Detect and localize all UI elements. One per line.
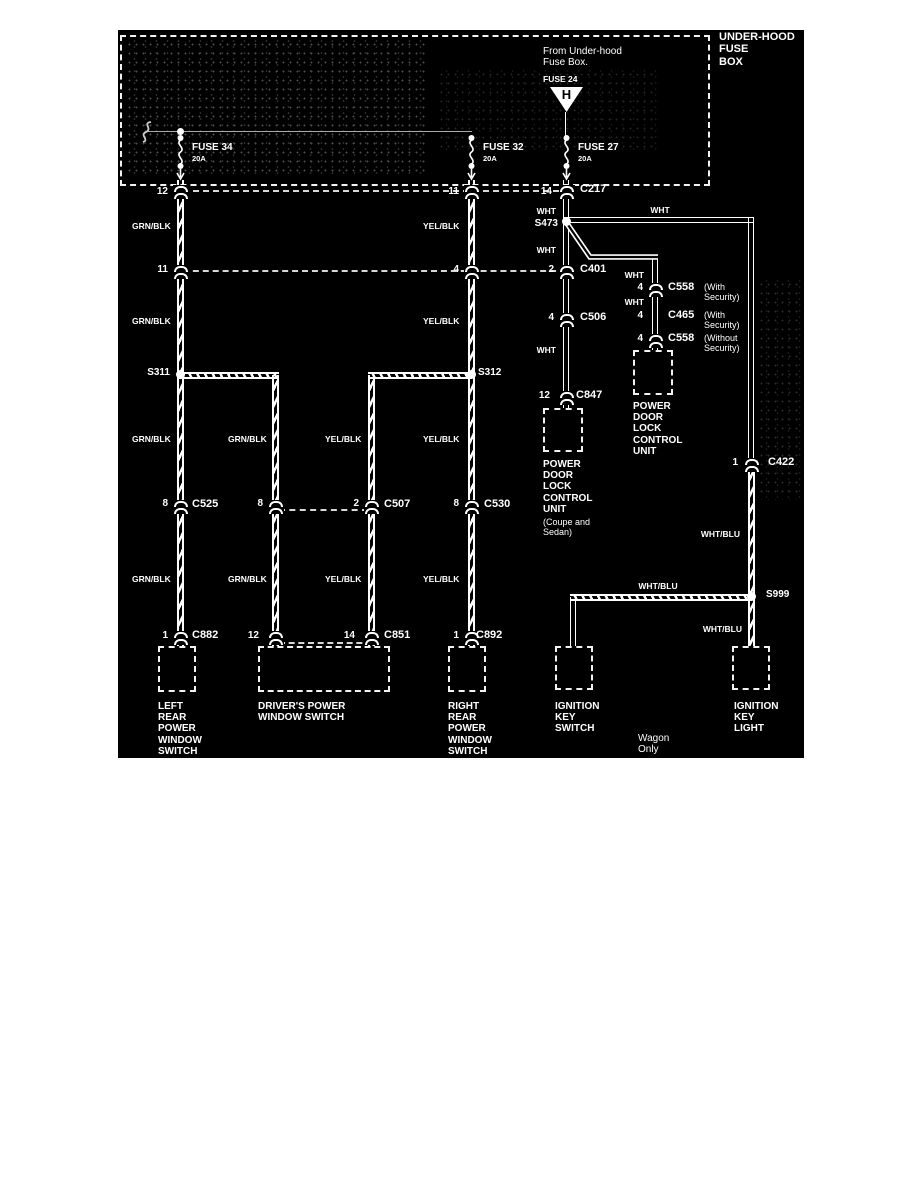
pin-1: 1: [714, 457, 738, 468]
splice-s311-label: S311: [126, 367, 170, 378]
wire-color-label: GRN/BLK: [132, 575, 171, 585]
pdl-unit-security-box: [633, 350, 673, 395]
ignition-key-light-box: [732, 646, 770, 690]
pin-4: 4: [619, 310, 643, 321]
fuse-bus-wire: [148, 131, 472, 132]
fuse-34-label: FUSE 34: [192, 142, 233, 153]
wagon-only-note: Wagon Only: [638, 733, 669, 755]
wire-color-label: WHT: [524, 207, 556, 217]
c558a-note: (With Security): [704, 282, 740, 302]
right-rear-switch-label: RIGHT REAR POWER WINDOW SWITCH: [448, 701, 492, 757]
wire-yelblk-right: [468, 180, 475, 648]
wire-color-label: GRN/BLK: [228, 575, 267, 585]
pin-8: 8: [144, 498, 168, 509]
pin-1: 1: [144, 630, 168, 641]
left-rear-switch-box: [158, 646, 196, 692]
wire-color-label: GRN/BLK: [228, 435, 267, 445]
connector-symbol: [648, 283, 664, 297]
left-rear-switch-label: LEFT REAR POWER WINDOW SWITCH: [158, 701, 202, 757]
wire-color-label: WHT: [612, 271, 644, 281]
wire-whtblu-ignswitch: [570, 597, 576, 648]
svg-text:H: H: [562, 87, 571, 102]
wire-break-squiggle: [138, 120, 156, 144]
wire-whtblu-keylight-lower: [748, 465, 755, 648]
splice-s473-dot: [562, 217, 571, 226]
connector-symbol: [559, 313, 575, 327]
connector-c506-label: C506: [580, 311, 606, 323]
c465-note: (With Security): [704, 310, 740, 330]
splice-s999-dot: [747, 592, 756, 601]
wire-grnblk-left: [177, 180, 184, 648]
wire-color-label: GRN/BLK: [132, 435, 171, 445]
wire-color-label: WHT: [524, 246, 556, 256]
c558b-note: (Without Security): [704, 333, 740, 353]
right-rear-switch-box: [448, 646, 486, 692]
connector-symbol: [648, 334, 664, 348]
fuse-32-label: FUSE 32: [483, 142, 524, 153]
connector-c558a-label: C558: [668, 281, 694, 293]
wire-color-label: YEL/BLK: [423, 317, 459, 327]
pdl-unit-coupe-label: POWER DOOR LOCK CONTROL UNIT: [543, 459, 592, 515]
connector-symbol: [173, 631, 189, 645]
document-page: UNDER-HOOD FUSE BOX From Under-hood Fuse…: [0, 0, 918, 1188]
supply-triangle-icon: H: [549, 86, 584, 113]
connector-c530-label: C530: [484, 498, 510, 510]
wire-wht-keylight-upper: [748, 217, 754, 465]
ignition-key-switch-box: [555, 646, 593, 690]
connector-c401-label: C401: [580, 263, 606, 275]
wire-color-label: WHT: [612, 298, 644, 308]
connector-c465-label: C465: [668, 309, 694, 321]
wire-color-label: WHT/BLU: [680, 625, 742, 635]
splice-s473-label: S473: [516, 218, 558, 229]
fuse-box-title: UNDER-HOOD FUSE BOX: [719, 31, 795, 68]
pin-2: 2: [530, 264, 554, 275]
fuse-27-label: FUSE 27: [578, 142, 619, 153]
fuse-27-rating: 20A: [578, 155, 592, 163]
wire-color-label: WHT: [630, 206, 690, 216]
pin-4: 4: [619, 333, 643, 344]
pin-4: 4: [619, 282, 643, 293]
wiring-diagram: UNDER-HOOD FUSE BOX From Under-hood Fuse…: [118, 30, 804, 758]
pin-12: 12: [235, 630, 259, 641]
wire-color-label: GRN/BLK: [132, 222, 171, 232]
connector-symbol: [744, 458, 760, 472]
connector-symbol: [364, 631, 380, 645]
drivers-switch-box: [258, 646, 390, 692]
wire-color-label: YEL/BLK: [423, 575, 459, 585]
fuse-34-icon: [172, 133, 189, 181]
pdl-unit-coupe-box: [543, 408, 583, 452]
connector-c525-label: C525: [192, 498, 218, 510]
wire-color-label: YEL/BLK: [423, 435, 459, 445]
pin-12: 12: [526, 390, 550, 401]
connector-c422-label: C422: [768, 456, 794, 468]
connector-symbol: [364, 500, 380, 514]
splice-s312-label: S312: [478, 367, 501, 378]
connector-symbol: [464, 185, 480, 199]
splice-s311-dot: [176, 370, 185, 379]
pin-11: 11: [144, 264, 168, 275]
wire-color-label: WHT/BLU: [678, 530, 740, 540]
wire-s473-diagonal: [558, 213, 660, 263]
connector-c851-label: C851: [384, 629, 410, 641]
pin-11: 11: [435, 186, 459, 197]
source-fuse-label: FUSE 24: [543, 75, 578, 85]
connector-symbol: [464, 500, 480, 514]
pin-2: 2: [335, 498, 359, 509]
wire-s999-horizontal: [570, 594, 752, 601]
wire-color-label: WHT: [524, 346, 556, 356]
wire-color-label: WHT/BLU: [613, 582, 703, 592]
fuse-34-rating: 20A: [192, 155, 206, 163]
connector-symbol: [268, 500, 284, 514]
c507-dashed-line: [279, 509, 368, 511]
pdl-unit-security-label: POWER DOOR LOCK CONTROL UNIT: [633, 401, 682, 457]
drivers-switch-label: DRIVER'S POWER WINDOW SWITCH: [258, 701, 345, 723]
connector-c558b-label: C558: [668, 332, 694, 344]
pin-12: 12: [144, 186, 168, 197]
fuse-32-rating: 20A: [483, 155, 497, 163]
connector-row-dashed-line-mid: [173, 270, 566, 272]
ignition-key-light-label: IGNITION KEY LIGHT: [734, 701, 778, 735]
connector-c507-label: C507: [384, 498, 410, 510]
connector-symbol: [173, 500, 189, 514]
pin-1: 1: [435, 630, 459, 641]
wire-color-label: GRN/BLK: [132, 317, 171, 327]
pin-4: 4: [435, 264, 459, 275]
connector-symbol: [559, 185, 575, 199]
connector-symbol: [464, 265, 480, 279]
wire-color-label: YEL/BLK: [423, 222, 459, 232]
wire-s312-branch: [368, 372, 472, 379]
pin-4: 4: [530, 312, 554, 323]
pdl-unit-coupe-note: (Coupe and Sedan): [543, 517, 590, 537]
splice-s312-dot: [467, 370, 476, 379]
connector-symbol: [559, 265, 575, 279]
c851-dashed-line: [279, 642, 372, 644]
connector-c217-label: C217: [580, 183, 606, 195]
wire-s311-branch: [177, 372, 279, 379]
connector-symbol: [559, 391, 575, 405]
pin-8: 8: [435, 498, 459, 509]
connector-symbol: [173, 265, 189, 279]
connector-symbol: [268, 631, 284, 645]
scan-noise: [126, 40, 426, 178]
pin-14: 14: [331, 630, 355, 641]
connector-c847-label: C847: [576, 389, 602, 401]
wire-color-label: YEL/BLK: [325, 575, 361, 585]
connector-symbol: [173, 185, 189, 199]
fuse-27-icon: [558, 133, 575, 181]
pin-14: 14: [528, 186, 552, 197]
splice-s999-label: S999: [766, 589, 789, 600]
source-note: From Under-hood Fuse Box.: [543, 46, 622, 68]
connector-row-dashed-line-top: [173, 190, 569, 192]
connector-c892-label: C892: [476, 629, 502, 641]
wire-color-label: YEL/BLK: [325, 435, 361, 445]
fuse-32-icon: [463, 133, 480, 181]
connector-c882-label: C882: [192, 629, 218, 641]
pin-8: 8: [239, 498, 263, 509]
ignition-key-switch-label: IGNITION KEY SWITCH: [555, 701, 599, 735]
